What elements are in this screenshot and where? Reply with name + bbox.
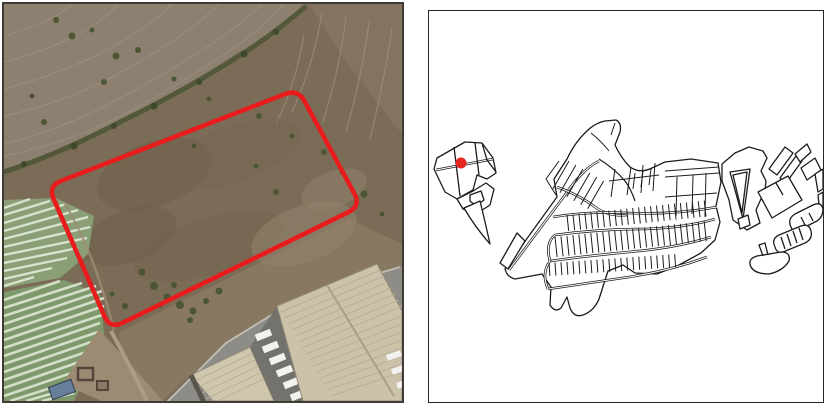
satellite-image (4, 4, 402, 401)
figure-canvas (0, 0, 833, 412)
site-location-marker (456, 158, 467, 169)
ruin-outline (97, 381, 108, 390)
cadastral-map (429, 11, 823, 402)
satellite-panel (2, 2, 404, 403)
cadastral-map-panel (428, 10, 824, 403)
